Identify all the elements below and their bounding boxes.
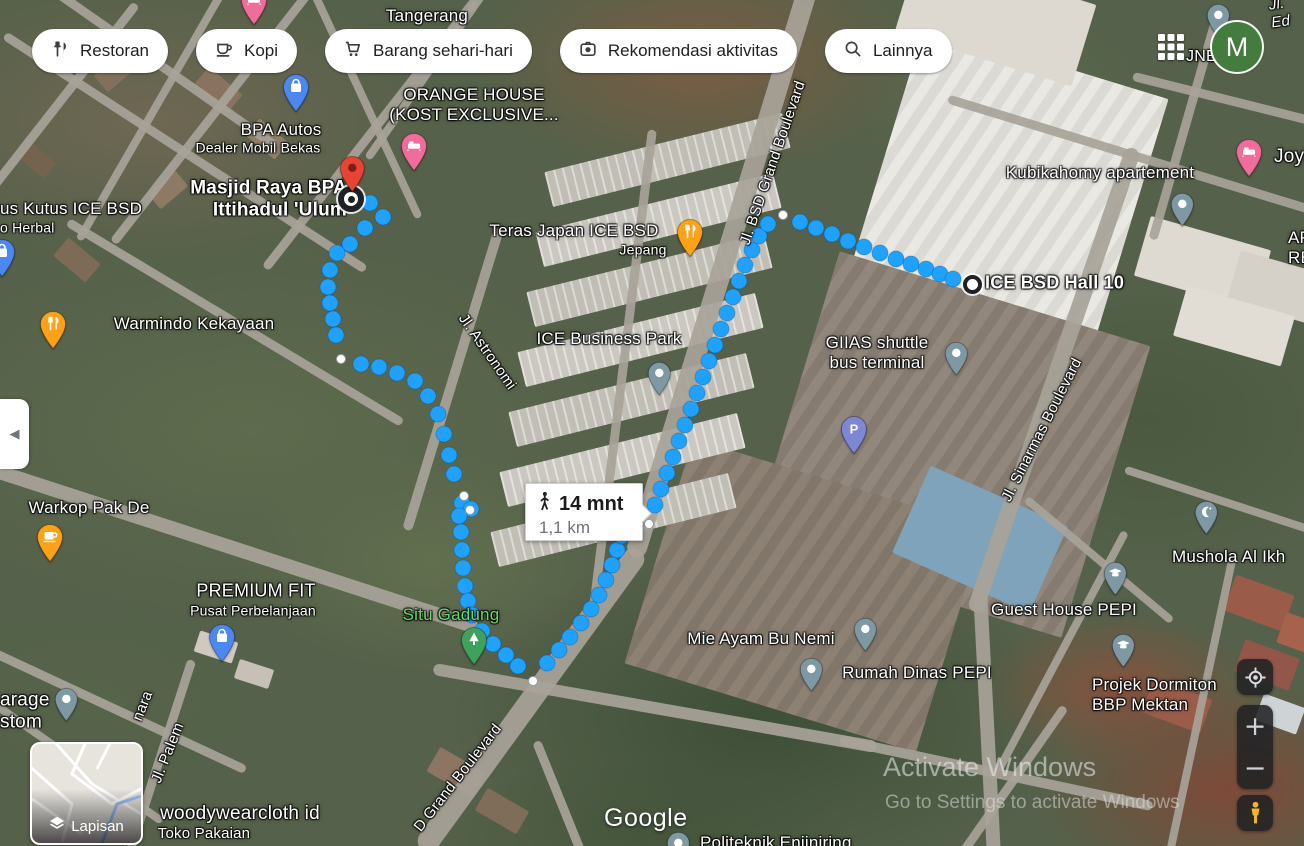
pin-bottom-left[interactable] [54,687,79,722]
chip-label: Restoran [80,41,149,61]
pin-mie-ayam[interactable] [853,617,878,652]
chevron-left-icon: ◀ [10,426,20,442]
layers-label: Lapisan [71,818,124,835]
pin-rumah-dinas[interactable] [799,657,824,692]
pin-premium-fit[interactable] [208,623,236,663]
restaurant-icon [676,218,704,258]
route-end-marker[interactable] [963,275,982,294]
route-distance: 1,1 km [539,518,642,538]
dot-icon [799,657,824,692]
street-view-pegman-button[interactable] [1237,795,1273,831]
tree-icon [460,626,488,666]
chip-rekomendasi-aktivitas[interactable]: Rekomendasi aktivitas [560,29,797,73]
dot-icon [54,687,79,722]
chip-label: Rekomendasi aktivitas [608,41,778,61]
bed-icon [1235,138,1263,178]
route-start-center-dot [348,196,355,203]
pin-joyland[interactable] [1235,138,1263,178]
layers-icon [49,816,65,835]
layers-button[interactable]: Lapisan [30,742,143,845]
svg-text:P: P [850,421,859,436]
chip-label: Kopi [244,41,278,61]
zoom-controls: + − [1237,705,1273,789]
grad-icon [1103,561,1128,596]
chip-kopi[interactable]: Kopi [196,29,297,73]
route-info-tooltip[interactable]: 14 mnt 1,1 km [525,483,643,541]
bed-icon [400,132,428,172]
search-icon [844,40,862,63]
bag-icon [208,623,236,663]
my-location-icon [1244,666,1267,689]
bag-icon [0,238,16,278]
dot-icon [647,361,672,396]
chip-label: Lainnya [873,41,933,61]
pin-guest-house-pepi[interactable] [1103,561,1128,596]
pin-bpa-autos[interactable] [282,73,310,113]
google-apps-grid-icon[interactable] [1157,33,1187,63]
chip-lainnya[interactable]: Lainnya [825,29,952,73]
pegman-icon [1247,801,1264,825]
dot-icon [944,341,969,376]
route-duration: 14 mnt [559,493,623,516]
pin-warmindo-kekayaan[interactable] [39,310,67,350]
pin-left-edge-shop[interactable] [0,238,16,278]
walking-person-icon [537,491,552,517]
bag-icon [282,73,310,113]
crescent-icon [1194,500,1219,535]
category-chips-bar: RestoranKopiBarang sehari-hariRekomendas… [32,29,952,73]
pin-orange-house[interactable] [400,132,428,172]
grad-icon [1111,633,1136,668]
collapse-side-panel-button[interactable]: ◀ [0,399,29,469]
pin-teras-japan[interactable] [676,218,704,258]
bed-icon [240,0,268,26]
pin-destination-red[interactable] [339,155,366,193]
chip-barang-sehari-hari[interactable]: Barang sehari-hari [325,29,532,73]
restaurant-icon [39,310,67,350]
destination-pin-icon [339,155,366,193]
pin-ice-business-park[interactable] [647,361,672,396]
parking-icon: P [840,415,868,455]
restaurant-icon [51,40,69,63]
pin-projek-dormiton[interactable] [1111,633,1136,668]
my-location-button[interactable] [1237,659,1273,695]
coffee-icon [215,40,233,63]
google-maps-canvas[interactable]: TangerangORANGE HOUSE (KOST EXCLUSIVE...… [0,0,1304,846]
pin-parking[interactable]: P [840,415,868,455]
account-avatar[interactable]: M [1212,22,1262,72]
zoom-out-button[interactable]: − [1237,747,1273,789]
cart-icon [344,40,362,63]
pin-giias-shuttle[interactable] [944,341,969,376]
zoom-in-button[interactable]: + [1237,705,1273,747]
pin-kubikahomy[interactable] [1170,192,1195,227]
pin-situ-gadung[interactable] [460,626,488,666]
pin-politeknik[interactable] [666,831,691,846]
camera-icon [579,40,597,63]
dot-icon [1170,192,1195,227]
dot-icon [666,831,691,846]
chip-label: Barang sehari-hari [373,41,513,61]
pin-mushola[interactable] [1194,500,1219,535]
coffee-icon [36,523,64,563]
pin-warkop-pak-de[interactable] [36,523,64,563]
dot-icon [853,617,878,652]
pin-hotel-top[interactable] [240,0,268,26]
chip-restoran[interactable]: Restoran [32,29,168,73]
